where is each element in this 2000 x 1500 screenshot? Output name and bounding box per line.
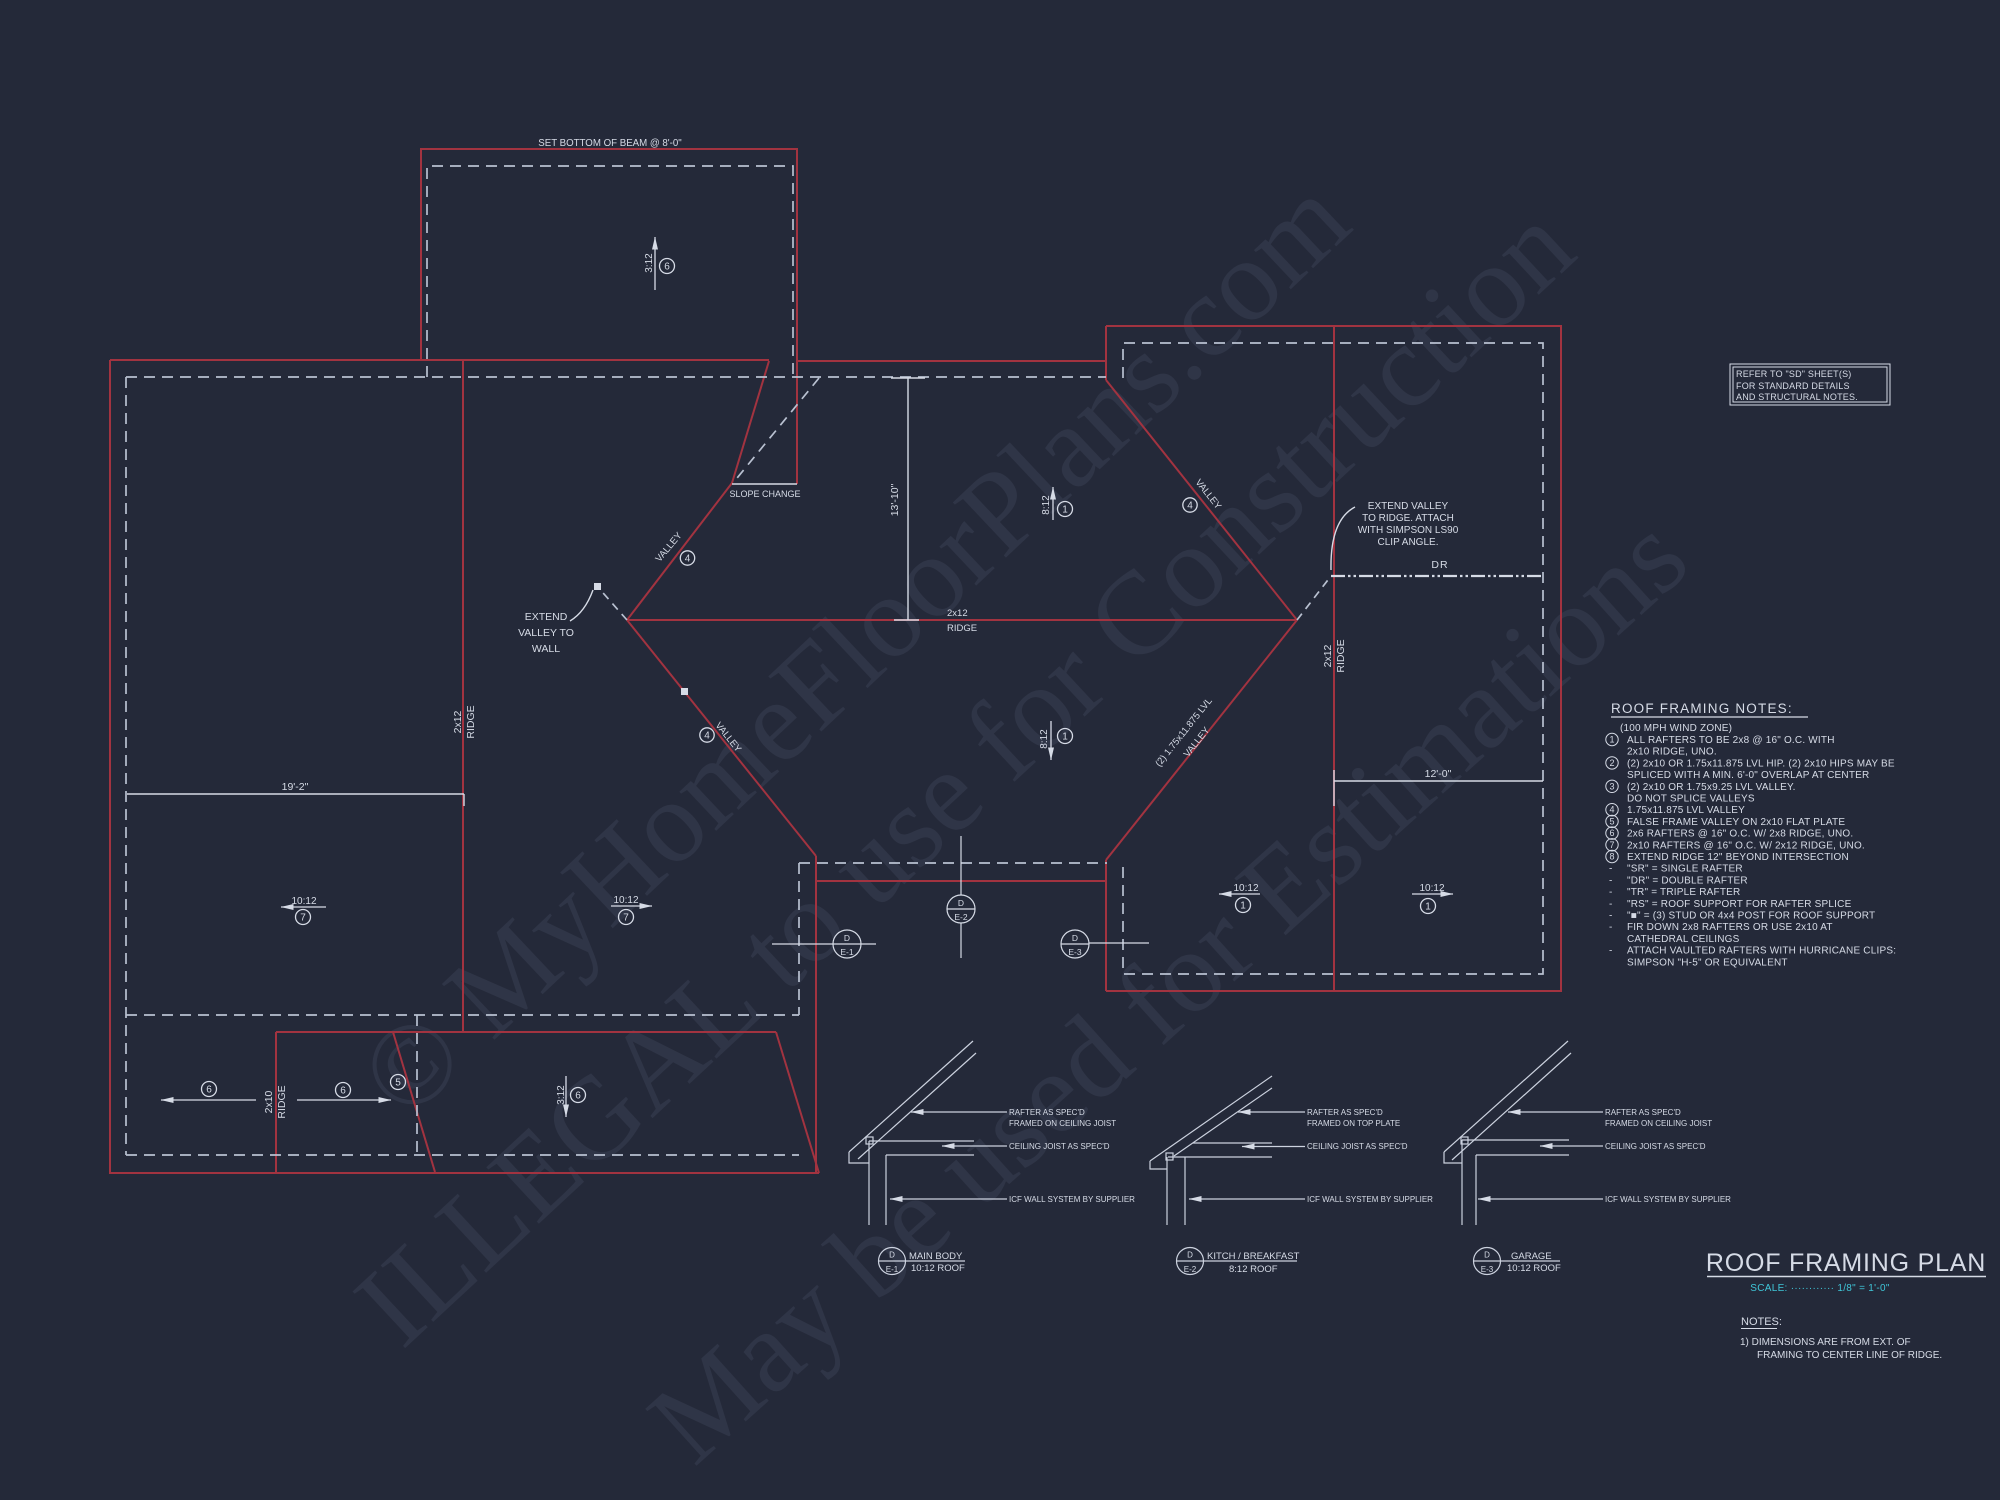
svg-text:D: D [958,898,964,908]
svg-text:D: D [1072,933,1078,943]
svg-text:ICF WALL SYSTEM BY SUPPLIER: ICF WALL SYSTEM BY SUPPLIER [1009,1195,1135,1204]
svg-text:1.75x11.875 LVL VALLEY: 1.75x11.875 LVL VALLEY [1627,805,1745,816]
svg-text:1) DIMENSIONS ARE FROM EXT. O: 1) DIMENSIONS ARE FROM EXT. OF [1740,1337,1911,1348]
svg-text:FRAMING TO CENTER LINE OF RIDG: FRAMING TO CENTER LINE OF RIDGE. [1757,1350,1942,1361]
svg-text:-: - [1609,922,1612,933]
svg-text:10:12: 10:12 [1419,883,1444,894]
svg-text:MAIN BODY: MAIN BODY [909,1251,963,1262]
svg-text:1: 1 [1240,901,1246,912]
svg-text:6: 6 [1609,828,1614,838]
svg-text:6: 6 [664,262,670,273]
svg-text:NOTES:: NOTES: [1741,1316,1782,1328]
svg-text:AND STRUCTURAL NOTES.: AND STRUCTURAL NOTES. [1736,392,1858,402]
svg-text:7: 7 [1609,840,1614,850]
svg-text:FOR STANDARD DETAILS: FOR STANDARD DETAILS [1736,381,1850,391]
svg-text:FRAMED ON CEILING JOIST: FRAMED ON CEILING JOIST [1009,1119,1116,1128]
svg-text:4: 4 [704,731,710,742]
svg-text:10:12: 10:12 [291,896,316,907]
svg-text:5: 5 [1609,816,1614,826]
svg-text:CEILING JOIST AS SPEC'D: CEILING JOIST AS SPEC'D [1009,1142,1110,1151]
svg-text:10:12: 10:12 [613,895,638,906]
svg-text:8: 8 [1609,852,1614,862]
svg-text:REFER TO "SD" SHEET(S): REFER TO "SD" SHEET(S) [1736,369,1851,379]
svg-text:DO NOT SPLICE VALLEYS: DO NOT SPLICE VALLEYS [1627,794,1755,805]
svg-text:6: 6 [206,1085,212,1096]
svg-text:E-1: E-1 [886,1265,899,1274]
svg-text:TO RIDGE. ATTACH: TO RIDGE. ATTACH [1362,513,1454,524]
svg-text:4: 4 [685,554,691,565]
svg-text:FRAMED ON TOP PLATE: FRAMED ON TOP PLATE [1307,1119,1400,1128]
svg-text:ICF WALL SYSTEM BY SUPPLIER: ICF WALL SYSTEM BY SUPPLIER [1307,1195,1433,1204]
svg-text:7: 7 [623,913,629,924]
svg-text:3:12: 3:12 [556,1085,567,1105]
svg-text:1: 1 [1062,732,1068,743]
svg-text:2x10 RAFTERS @ 16" O.C. W/ 2x1: 2x10 RAFTERS @ 16" O.C. W/ 2x12 RIDGE, U… [1627,840,1865,851]
svg-text:GARAGE: GARAGE [1511,1251,1552,1262]
svg-text:SPLICED WITH A MIN. 6'-0" OVER: SPLICED WITH A MIN. 6'-0" OVERLAP AT CEN… [1627,770,1869,781]
svg-text:7: 7 [300,913,306,924]
svg-text:8:12 ROOF: 8:12 ROOF [1229,1264,1278,1275]
svg-text:ATTACH VAULTED RAFTERS WITH HU: ATTACH VAULTED RAFTERS WITH HURRICANE CL… [1627,946,1896,957]
svg-text:WALL: WALL [532,643,560,655]
svg-text:8:12: 8:12 [1041,495,1052,515]
svg-text:4: 4 [1187,501,1193,512]
svg-text:FIR DOWN 2x8 RAFTERS OR USE 2x: FIR DOWN 2x8 RAFTERS OR USE 2x10 AT [1627,922,1833,933]
svg-text:1: 1 [1062,505,1068,516]
svg-text:EXTEND VALLEY: EXTEND VALLEY [1368,501,1449,512]
svg-text:E-3: E-3 [1481,1265,1494,1274]
svg-text:CLIP ANGLE.: CLIP ANGLE. [1378,537,1439,548]
svg-text:KITCH / BREAKFAST: KITCH / BREAKFAST [1207,1251,1300,1262]
svg-text:WITH SIMPSON LS90: WITH SIMPSON LS90 [1358,525,1459,536]
svg-text:DR: DR [1431,559,1448,571]
svg-text:(2) 2x10 OR 1.75x11.875 LVL HI: (2) 2x10 OR 1.75x11.875 LVL HIP. (2) 2x1… [1627,758,1895,769]
svg-text:ROOF FRAMING PLAN: ROOF FRAMING PLAN [1706,1249,1986,1277]
svg-text:"DR" = DOUBLE RAFTER: "DR" = DOUBLE RAFTER [1627,875,1748,886]
svg-text:SLOPE CHANGE: SLOPE CHANGE [729,489,800,499]
svg-text:"TR" = TRIPLE RAFTER: "TR" = TRIPLE RAFTER [1627,887,1740,898]
svg-text:E-3: E-3 [1068,947,1082,957]
svg-text:2x6 RAFTERS @ 16" O.C. W/ 2x8: 2x6 RAFTERS @ 16" O.C. W/ 2x8 RIDGE, UNO… [1627,829,1853,840]
svg-text:RIDGE: RIDGE [1335,639,1347,672]
svg-text:D: D [1187,1251,1193,1260]
svg-text:8:12: 8:12 [1039,729,1050,749]
svg-text:RIDGE: RIDGE [276,1085,288,1118]
svg-text:RAFTER AS SPEC'D: RAFTER AS SPEC'D [1605,1108,1681,1117]
svg-text:(100 MPH WIND ZONE): (100 MPH WIND ZONE) [1620,723,1732,734]
svg-text:1: 1 [1609,735,1614,745]
svg-text:VALLEY TO: VALLEY TO [518,627,574,639]
svg-text:FRAMED ON CEILING JOIST: FRAMED ON CEILING JOIST [1605,1119,1712,1128]
svg-text:CEILING JOIST AS SPEC'D: CEILING JOIST AS SPEC'D [1307,1142,1408,1151]
svg-text:RIDGE: RIDGE [465,705,477,738]
svg-text:10:12 ROOF: 10:12 ROOF [1507,1263,1561,1274]
svg-text:6: 6 [575,1091,581,1102]
svg-text:-: - [1609,946,1612,957]
svg-text:ROOF FRAMING NOTES:: ROOF FRAMING NOTES: [1611,701,1793,716]
svg-text:ICF WALL SYSTEM BY SUPPLIER: ICF WALL SYSTEM BY SUPPLIER [1605,1195,1731,1204]
svg-text:EXTEND RIDGE 12" BEYOND INTERS: EXTEND RIDGE 12" BEYOND INTERSECTION [1627,852,1849,863]
svg-text:5: 5 [395,1078,401,1089]
svg-text:"RS" = ROOF SUPPORT FOR RAFT: "RS" = ROOF SUPPORT FOR RAFTER SPLICE [1627,899,1852,910]
svg-text:-: - [1609,875,1612,886]
svg-text:SCALE: ············ 1/8" = 1'-: SCALE: ············ 1/8" = 1'-0" [1750,1283,1890,1294]
svg-text:CATHEDRAL CEILINGS: CATHEDRAL CEILINGS [1627,934,1740,945]
svg-text:E-2: E-2 [954,912,968,922]
svg-text:13'-10": 13'-10" [889,483,901,516]
svg-text:19'-2": 19'-2" [282,781,309,793]
svg-text:RAFTER AS SPEC'D: RAFTER AS SPEC'D [1307,1108,1383,1117]
svg-text:10:12 ROOF: 10:12 ROOF [911,1263,965,1274]
svg-text:-: - [1609,887,1612,898]
svg-text:2x10: 2x10 [263,1090,275,1113]
svg-text:-: - [1609,864,1612,875]
svg-text:ALL RAFTERS TO BE 2x8 @ 16" O.: ALL RAFTERS TO BE 2x8 @ 16" O.C. WITH [1627,735,1835,746]
svg-text:-: - [1609,899,1612,910]
svg-text:E-1: E-1 [840,947,854,957]
svg-text:"SR" = SINGLE RAFTER: "SR" = SINGLE RAFTER [1627,864,1743,875]
svg-text:D: D [1484,1251,1490,1260]
svg-text:2x10 RIDGE, UNO.: 2x10 RIDGE, UNO. [1627,747,1717,758]
svg-text:SET BOTTOM OF BEAM @ 8'-0": SET BOTTOM OF BEAM @ 8'-0" [538,138,682,149]
svg-text:2: 2 [1609,758,1614,768]
svg-text:(2) 2x10 OR 1.75x9.25 LVL VALL: (2) 2x10 OR 1.75x9.25 LVL VALLEY. [1627,782,1796,793]
svg-text:4: 4 [1609,805,1614,815]
svg-text:"■" = (3) STUD OR 4x4 POST: "■" = (3) STUD OR 4x4 POST FOR ROOF SUPP… [1627,911,1875,922]
svg-text:2x12: 2x12 [947,608,968,619]
svg-text:2x12: 2x12 [1322,644,1334,667]
svg-text:D: D [844,933,850,943]
svg-text:3: 3 [1609,781,1614,791]
svg-text:SIMPSON "H-5" OR EQUIVALENT: SIMPSON "H-5" OR EQUIVALENT [1627,957,1788,968]
svg-text:1: 1 [1425,902,1431,913]
svg-text:12'-0": 12'-0" [1425,768,1452,780]
svg-text:10:12: 10:12 [1233,883,1258,894]
svg-text:E-2: E-2 [1184,1265,1197,1274]
svg-text:FALSE FRAME VALLEY ON 2x10 FLA: FALSE FRAME VALLEY ON 2x10 FLAT PLATE [1627,817,1845,828]
svg-text:2x12: 2x12 [452,710,464,733]
svg-text:RAFTER AS SPEC'D: RAFTER AS SPEC'D [1009,1108,1085,1117]
svg-text:D: D [889,1251,895,1260]
svg-text:6: 6 [340,1086,346,1097]
svg-text:-: - [1609,911,1612,922]
svg-text:CEILING JOIST AS SPEC'D: CEILING JOIST AS SPEC'D [1605,1142,1706,1151]
svg-text:RIDGE: RIDGE [947,623,977,634]
svg-text:EXTEND: EXTEND [525,611,568,623]
svg-text:3:12: 3:12 [644,253,655,273]
